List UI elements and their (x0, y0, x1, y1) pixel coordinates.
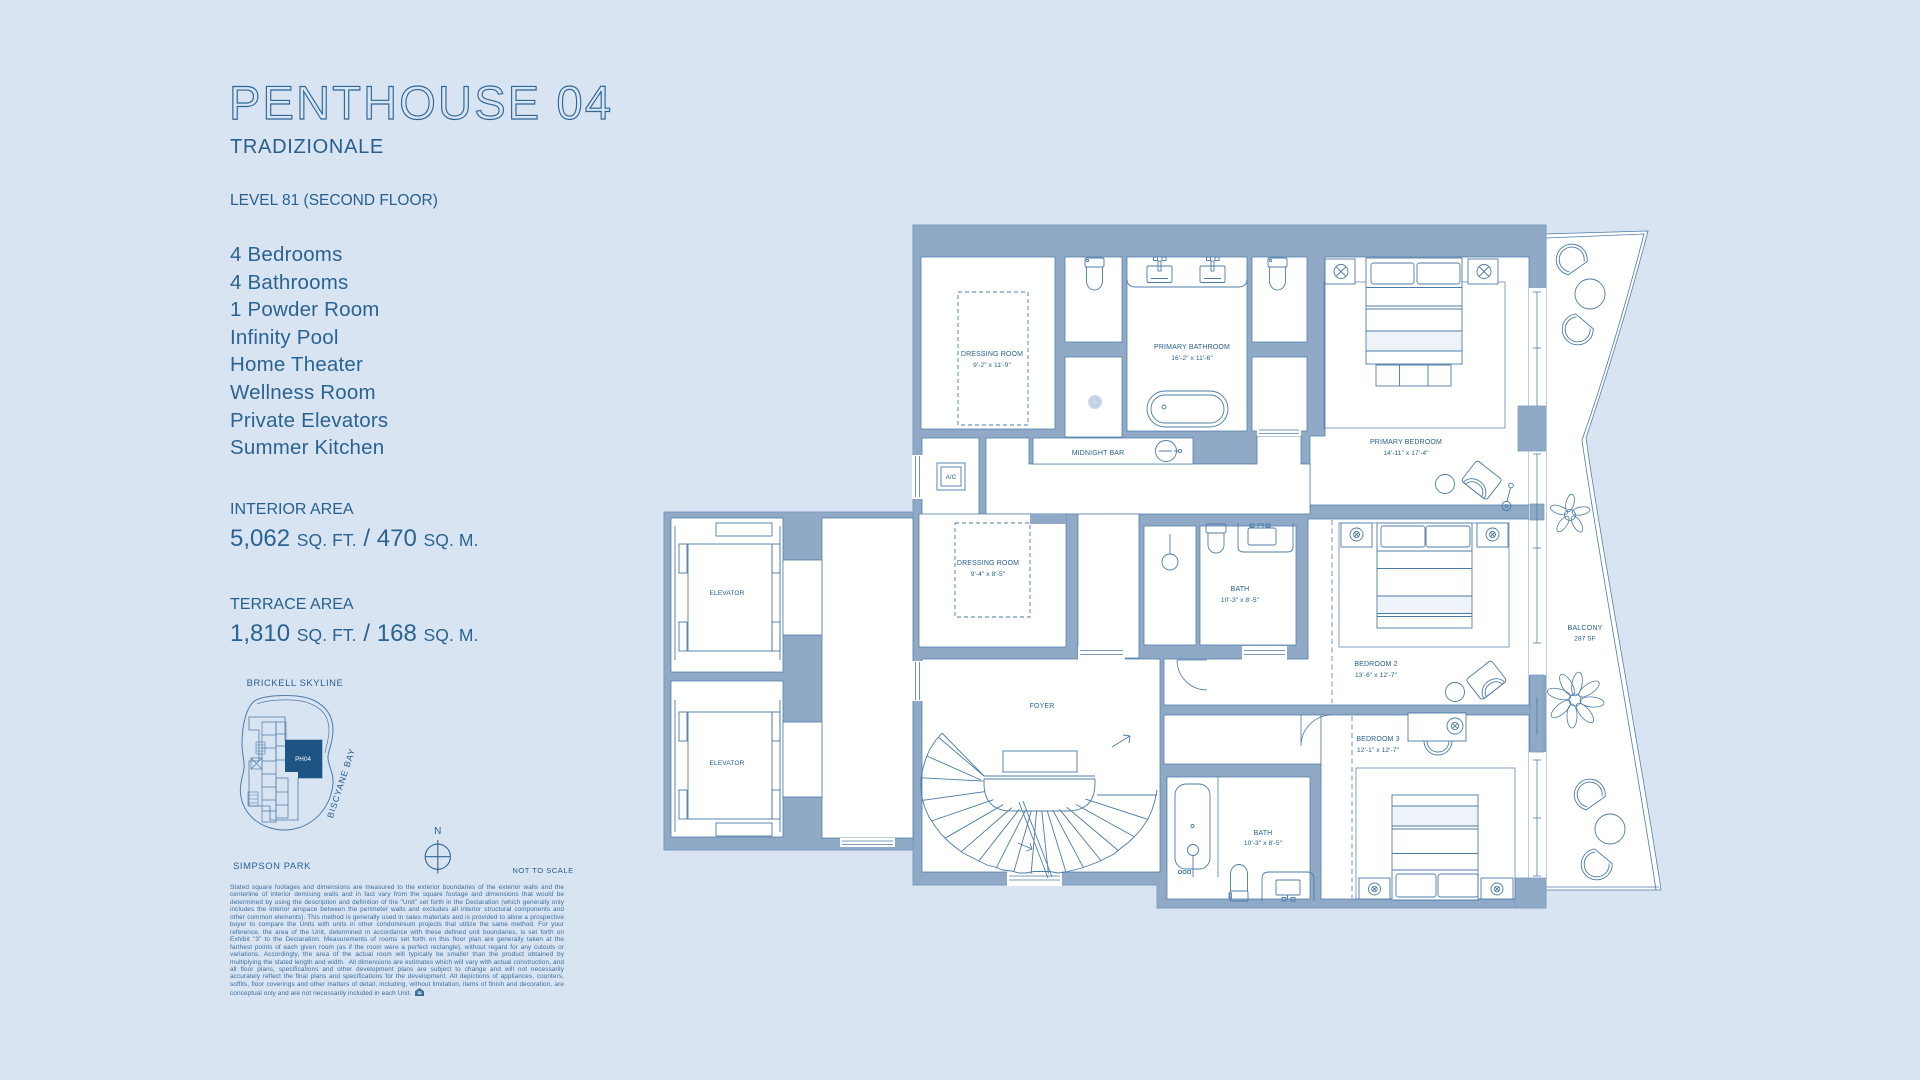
svg-text:FOYER: FOYER (1030, 703, 1055, 710)
svg-text:DRESSING ROOM: DRESSING ROOM (957, 560, 1019, 567)
svg-text:ELEVATOR: ELEVATOR (710, 760, 745, 767)
svg-text:PH04: PH04 (295, 756, 311, 763)
svg-text:12'-1" x 12'-7": 12'-1" x 12'-7" (1357, 747, 1400, 754)
svg-text:DRESSING ROOM: DRESSING ROOM (961, 351, 1023, 358)
svg-text:BATH: BATH (1231, 586, 1250, 593)
svg-text:SIMPSON PARK: SIMPSON PARK (233, 860, 311, 871)
svg-text:13'-6" x 12'-7": 13'-6" x 12'-7" (1355, 672, 1398, 679)
svg-text:ELEVATOR: ELEVATOR (710, 590, 745, 597)
svg-text:BRICKELL SKYLINE: BRICKELL SKYLINE (247, 677, 344, 688)
svg-text:9'-4" x 8'-5": 9'-4" x 8'-5" (971, 571, 1006, 578)
svg-text:16'-2" x 11'-6": 16'-2" x 11'-6" (1171, 355, 1213, 362)
svg-text:BEDROOM 2: BEDROOM 2 (1354, 661, 1397, 668)
svg-text:NOT TO SCALE: NOT TO SCALE (512, 866, 573, 875)
svg-text:10'-3" x 8'-5": 10'-3" x 8'-5" (1221, 597, 1260, 604)
svg-text:10'-3" x 8'-5": 10'-3" x 8'-5" (1244, 840, 1283, 847)
svg-text:PRIMARY BATHROOM: PRIMARY BATHROOM (1154, 344, 1230, 351)
svg-text:14'-11" x 17'-4": 14'-11" x 17'-4" (1383, 450, 1429, 457)
svg-text:BATH: BATH (1254, 830, 1273, 837)
svg-text:MIDNIGHT BAR: MIDNIGHT BAR (1072, 450, 1125, 457)
svg-text:A/C: A/C (946, 475, 957, 481)
svg-text:BALCONY: BALCONY (1567, 623, 1602, 632)
svg-text:9'-2" x 11'-9": 9'-2" x 11'-9" (973, 362, 1011, 369)
svg-text:BEDROOM 3: BEDROOM 3 (1356, 736, 1399, 743)
svg-text:PRIMARY BEDROOM: PRIMARY BEDROOM (1370, 439, 1442, 446)
svg-text:N: N (434, 826, 441, 837)
svg-text:287 SF: 287 SF (1574, 636, 1596, 643)
svg-text:BISCYANE BAY: BISCYANE BAY (325, 747, 357, 819)
